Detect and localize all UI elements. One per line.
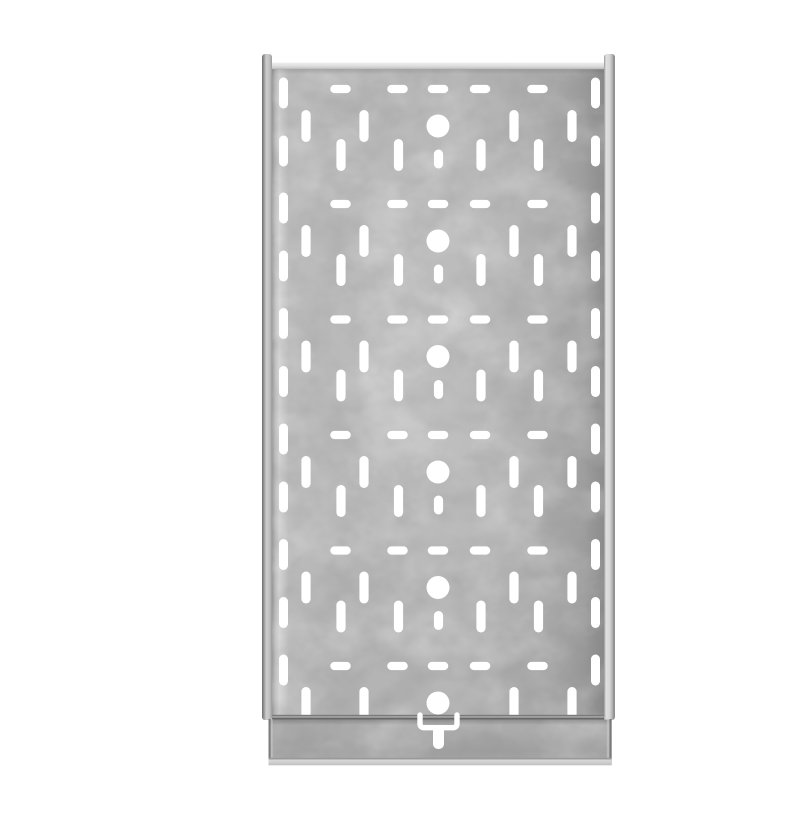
dash-slot: [428, 200, 449, 208]
long-slot: [301, 341, 310, 373]
edge-slot: [591, 308, 600, 339]
center-hole: [427, 461, 450, 484]
edge-slot: [279, 251, 288, 282]
flange-right-edge-highlight: [607, 719, 610, 758]
dash-slot: [428, 85, 449, 93]
edge-slot: [591, 597, 600, 628]
medium-slot: [534, 254, 543, 286]
cable-tray-scene: [40, 16, 800, 816]
long-slot: [567, 456, 576, 488]
long-slot: [359, 687, 368, 719]
medium-slot: [394, 601, 403, 633]
short-center-slot: [434, 265, 443, 284]
long-slot: [359, 572, 368, 604]
dash-slot: [330, 546, 351, 554]
long-slot: [567, 341, 576, 373]
center-hole: [427, 692, 450, 715]
long-slot: [567, 687, 576, 719]
flange-fold-line: [269, 758, 612, 760]
edge-slot: [591, 136, 600, 167]
edge-slot: [591, 655, 600, 686]
right-side-rail: [604, 54, 615, 720]
edge-slot: [279, 424, 288, 455]
medium-slot: [336, 254, 345, 286]
edge-slot: [279, 597, 288, 628]
seam-line-gap: [272, 716, 604, 717]
dash-slot: [387, 200, 408, 208]
medium-slot: [476, 254, 485, 286]
dash-slot: [527, 315, 548, 323]
edge-slot: [591, 366, 600, 397]
dash-slot: [387, 662, 408, 670]
dash-slot: [428, 662, 449, 670]
medium-slot: [336, 139, 345, 171]
edge-slot: [591, 539, 600, 570]
dash-slot: [470, 662, 491, 670]
edge-slot: [591, 251, 600, 282]
medium-slot: [534, 485, 543, 517]
dash-slot: [527, 85, 548, 93]
edge-slot: [279, 539, 288, 570]
seam-lines: [272, 715, 604, 720]
medium-slot: [394, 370, 403, 402]
long-slot: [567, 572, 576, 604]
edge-slot: [591, 193, 600, 224]
short-center-slot: [434, 380, 443, 399]
medium-slot: [336, 485, 345, 517]
long-slot: [509, 572, 518, 604]
dash-slot: [387, 431, 408, 439]
edge-slot: [279, 78, 288, 109]
long-slot: [509, 341, 518, 373]
long-slot: [301, 572, 310, 604]
edge-slot: [279, 482, 288, 513]
medium-slot: [336, 370, 345, 402]
dash-slot: [470, 315, 491, 323]
dash-slot: [387, 546, 408, 554]
edge-slot: [279, 655, 288, 686]
dash-slot: [470, 85, 491, 93]
flange-left-edge-line: [269, 719, 271, 765]
medium-slot: [476, 370, 485, 402]
edge-slot: [591, 424, 600, 455]
dash-slot: [330, 315, 351, 323]
dash-slot: [470, 431, 491, 439]
long-slot: [301, 225, 310, 257]
center-hole: [427, 345, 450, 368]
medium-slot: [476, 139, 485, 171]
medium-slot: [394, 254, 403, 286]
long-slot: [509, 225, 518, 257]
edge-slot: [591, 482, 600, 513]
dash-slot: [470, 546, 491, 554]
handle-stem-cutout: [433, 726, 444, 749]
long-slot: [301, 456, 310, 488]
dash-slot: [470, 200, 491, 208]
medium-slot: [394, 139, 403, 171]
long-slot: [301, 687, 310, 719]
short-center-slot: [434, 496, 443, 515]
medium-slot: [534, 139, 543, 171]
dash-slot: [387, 315, 408, 323]
long-slot: [509, 110, 518, 142]
medium-slot: [534, 601, 543, 633]
dash-slot: [428, 431, 449, 439]
dash-slot: [330, 200, 351, 208]
dash-slot: [527, 546, 548, 554]
cable-tray-photo: Top-down product photo of a galvanized s…: [40, 16, 800, 816]
long-slot: [301, 110, 310, 142]
center-hole: [427, 576, 450, 599]
center-hole: [427, 115, 450, 138]
long-slot: [359, 110, 368, 142]
left-side-rail: [262, 54, 272, 720]
long-slot: [509, 687, 518, 719]
edge-slot: [279, 136, 288, 167]
medium-slot: [534, 370, 543, 402]
dash-slot: [387, 85, 408, 93]
short-center-slot: [434, 150, 443, 169]
long-slot: [567, 110, 576, 142]
panel-top-shadow: [272, 69, 604, 74]
long-slot: [567, 225, 576, 257]
edge-slot: [279, 366, 288, 397]
dash-slot: [527, 200, 548, 208]
dash-slot: [330, 431, 351, 439]
medium-slot: [476, 601, 485, 633]
flange-left-edge-highlight: [271, 719, 273, 758]
seam-line-upper: [272, 715, 604, 717]
short-center-slot: [434, 611, 443, 630]
dash-slot: [330, 85, 351, 93]
bottom-lip: [269, 760, 612, 766]
long-slot: [359, 225, 368, 257]
medium-slot: [336, 601, 345, 633]
flange-top-shadow: [269, 720, 612, 726]
medium-slot: [476, 485, 485, 517]
edge-slot: [279, 193, 288, 224]
long-slot: [359, 456, 368, 488]
dash-slot: [330, 662, 351, 670]
seam-line-lower: [272, 718, 604, 720]
dash-slot: [527, 431, 548, 439]
center-hole: [427, 230, 450, 253]
dash-slot: [428, 546, 449, 554]
dash-slot: [527, 662, 548, 670]
medium-slot: [394, 485, 403, 517]
edge-slot: [279, 308, 288, 339]
dash-slot: [428, 315, 449, 323]
long-slot: [359, 341, 368, 373]
top-fold-edge: [272, 63, 604, 70]
edge-slot: [591, 78, 600, 109]
long-slot: [509, 456, 518, 488]
